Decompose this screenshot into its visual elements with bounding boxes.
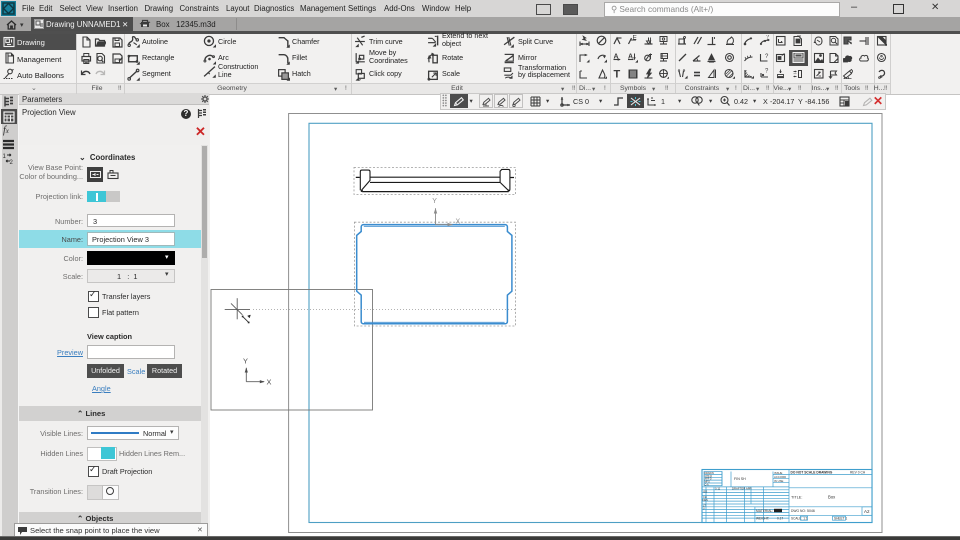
svg-text:DES: DES xyxy=(703,498,709,502)
svg-text:0.11: 0.11 xyxy=(715,487,721,491)
svg-text:A2: A2 xyxy=(864,509,870,514)
svg-text:?: ? xyxy=(765,68,769,74)
svg-text:0.17: 0.17 xyxy=(777,517,783,521)
svg-text:IN USE: IN USE xyxy=(774,479,783,483)
svg-text:2: 2 xyxy=(10,160,14,165)
svg-text:DRAFTER APR: DRAFTER APR xyxy=(732,487,752,491)
svg-text:Q.A: Q.A xyxy=(705,483,710,486)
svg-text:Y: Y xyxy=(432,198,437,205)
svg-text:E: E xyxy=(633,35,638,42)
svg-text:Y: Y xyxy=(243,357,248,366)
svg-text:V: V xyxy=(703,506,705,510)
svg-text:T: T xyxy=(614,68,621,79)
svg-text:FIN SH: FIN SH xyxy=(734,477,746,481)
svg-text:X: X xyxy=(456,219,461,226)
svg-text:DO NOT SCALE DRAWING: DO NOT SCALE DRAWING xyxy=(791,470,833,474)
svg-text:TITLE:: TITLE: xyxy=(791,496,802,500)
svg-text:WEIGHT:: WEIGHT: xyxy=(756,517,769,521)
svg-text:?: ? xyxy=(766,35,769,41)
svg-text:REV 0 CH: REV 0 CH xyxy=(850,470,866,474)
svg-text:MATERIAL:: MATERIAL: xyxy=(756,509,773,513)
svg-text:1: 1 xyxy=(3,154,7,160)
svg-text:?: ? xyxy=(765,54,769,60)
svg-text:5046: 5046 xyxy=(807,509,815,513)
svg-text:DWG NO:: DWG NO: xyxy=(791,509,806,513)
svg-text:X: X xyxy=(267,377,272,386)
svg-text:Box: Box xyxy=(828,495,836,500)
svg-text:ISS: ISS xyxy=(703,489,707,493)
